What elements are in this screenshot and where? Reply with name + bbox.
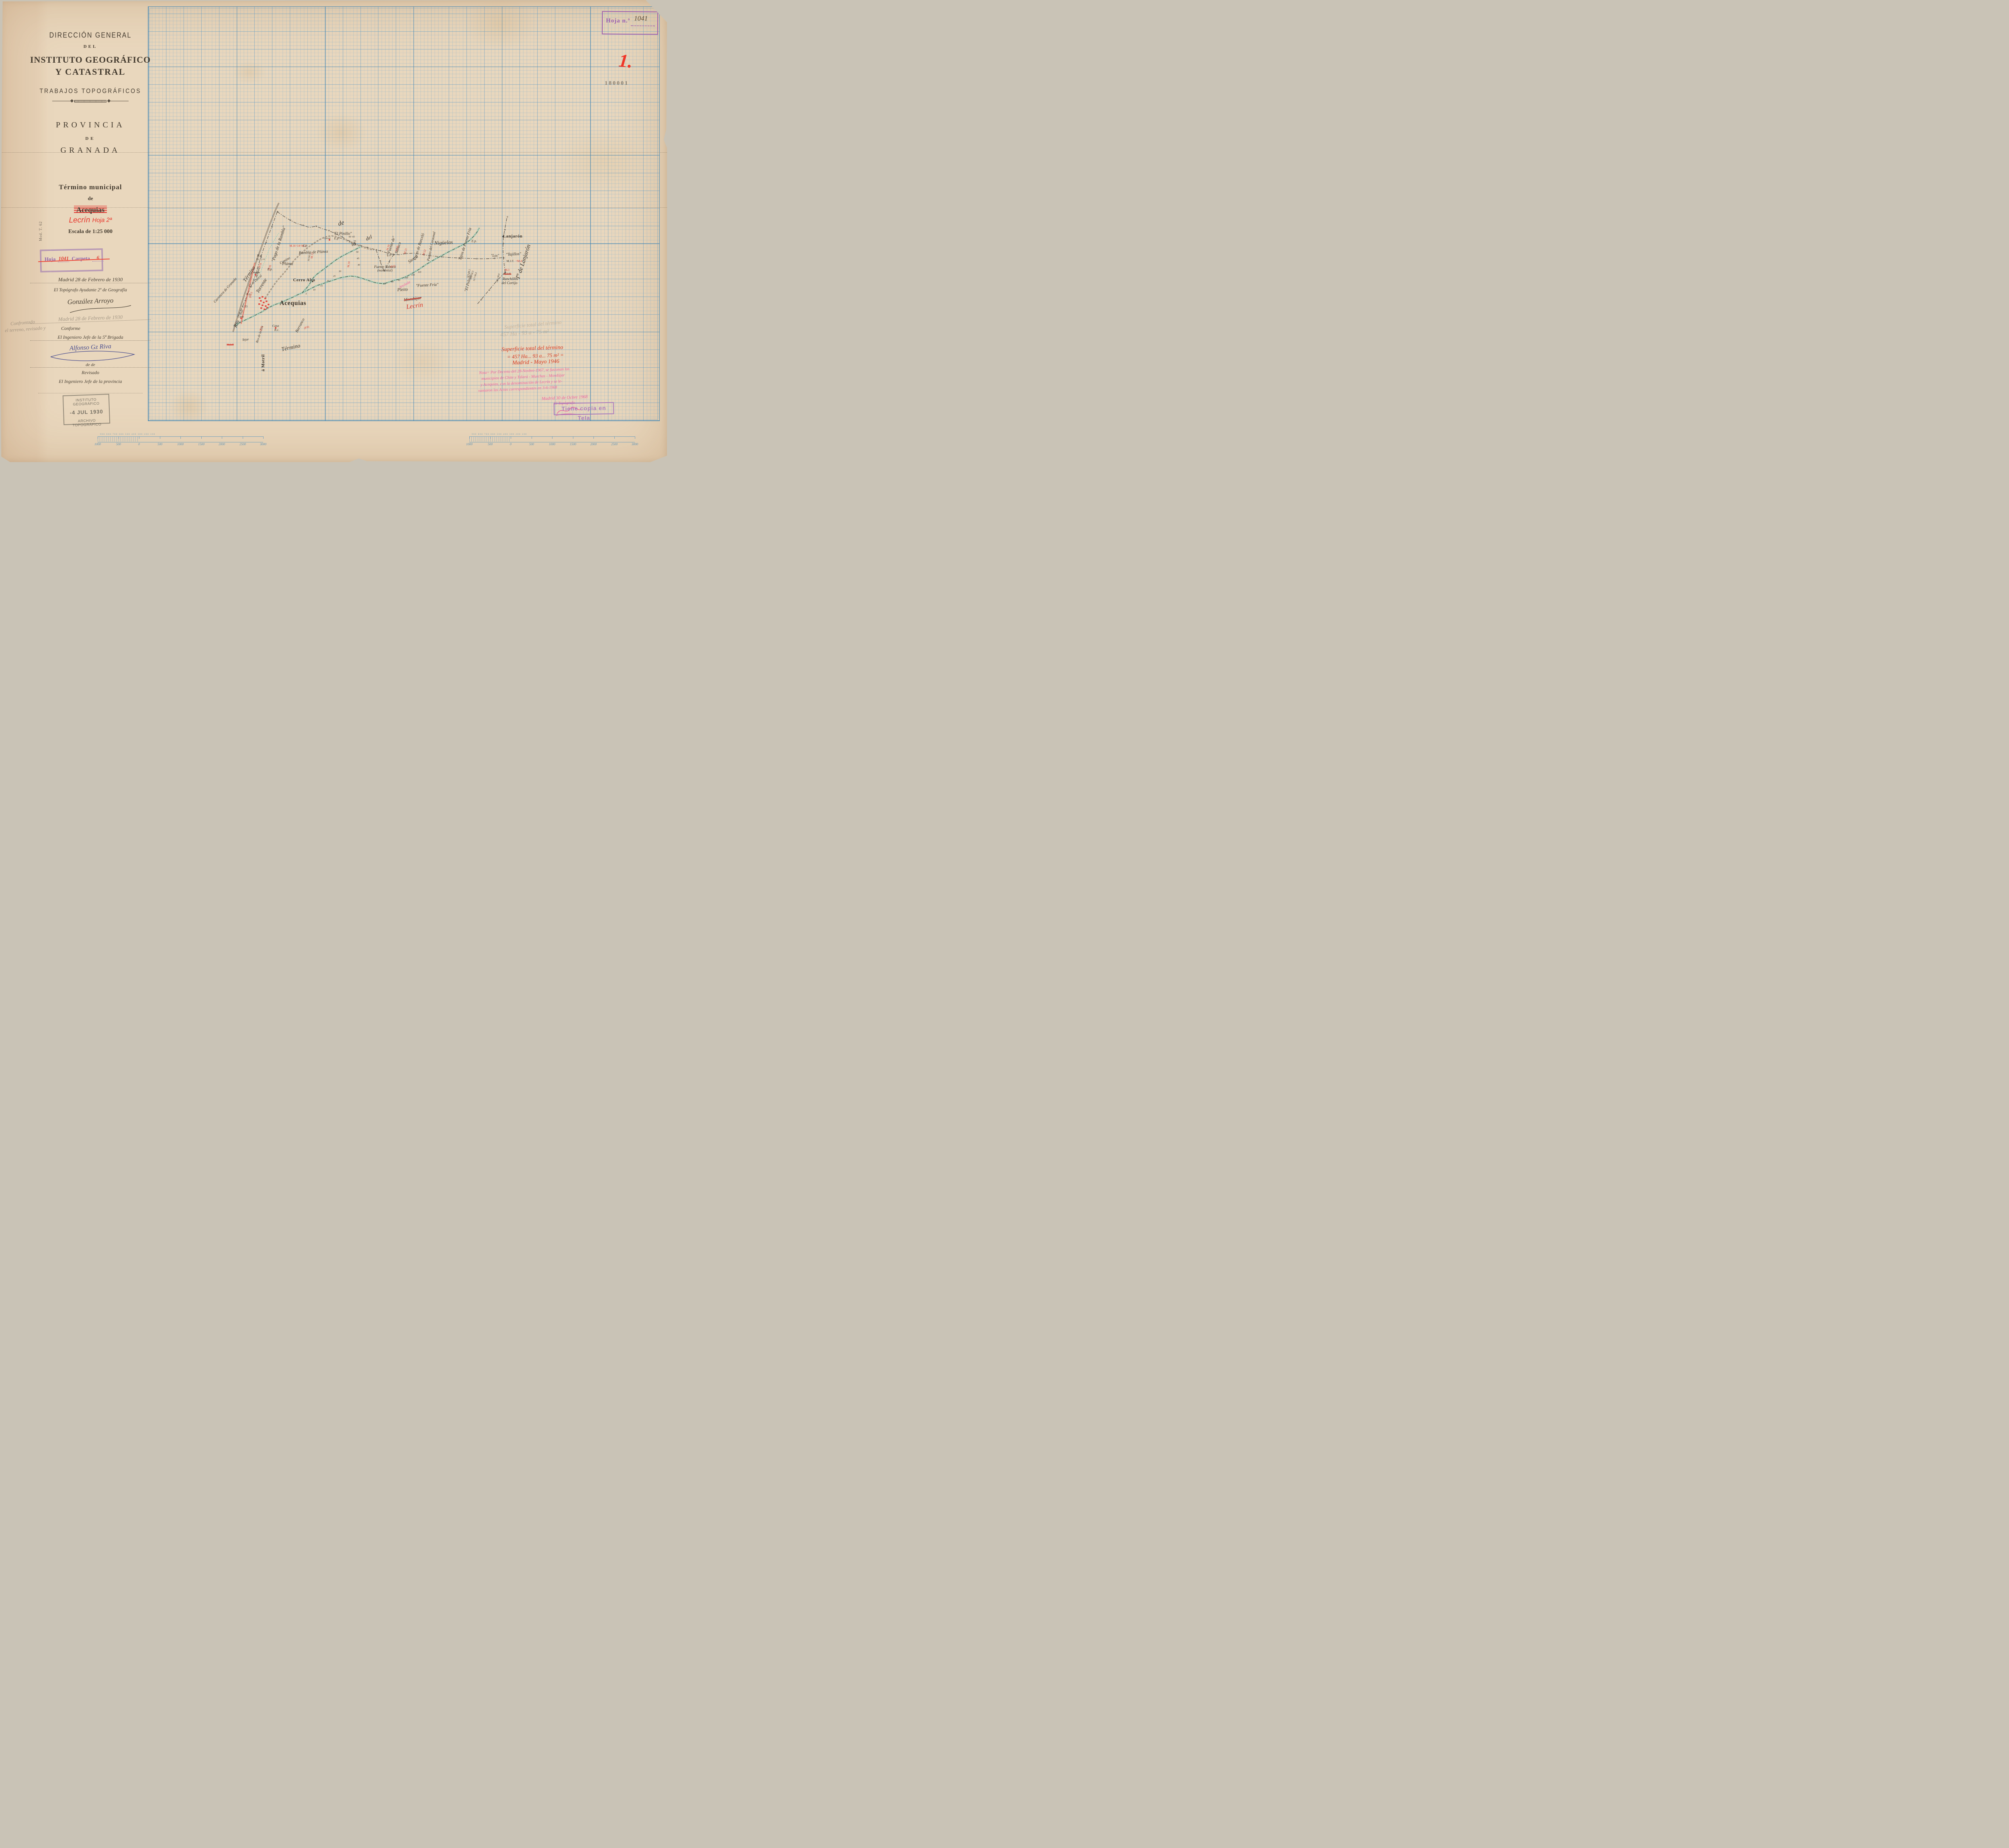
mod-reference: Mod. T. 62 [39, 221, 43, 241]
org-line-2: DEL [24, 44, 157, 49]
provincia-label: PROVINCIA [24, 121, 157, 130]
scale-tick-label: 1500 [198, 442, 205, 446]
scale-tick [139, 436, 139, 439]
scale-tick [552, 436, 552, 439]
scale-tick-label: 2000 [219, 442, 225, 446]
scale-tick-label: 0 [510, 442, 511, 446]
carpeta-stamp-label: Carpeta [72, 255, 90, 262]
scale-sub-numbers: 900 800 700 600 500 400 300 200 100 [100, 433, 155, 436]
provincia-de: DE [24, 136, 157, 141]
conforme-label: Conforme [61, 325, 80, 332]
scale-tick-label: 500 [529, 442, 534, 446]
map-sheet: DIRECCIÓN GENERAL DEL INSTITUTO GEOGRÁFI… [0, 0, 667, 462]
scale-tick [490, 436, 491, 439]
scale-tick [573, 436, 573, 439]
hoja-carpeta-stamp: Hoja 1041 Carpeta 6 [40, 248, 103, 272]
scale-tick-label: 500 [158, 442, 162, 446]
fecha-impresa: Madrid 28 de Febrero de 1930 [30, 276, 151, 283]
org-line-5: TRABAJOS TOPOGRÁFICOS [24, 87, 157, 94]
firma-jefe-brigada: Alfonso Gz Riva [30, 341, 151, 354]
title-block: DIRECCIÓN GENERAL DEL INSTITUTO GEOGRÁFI… [24, 32, 157, 235]
scale-tick-label: 1000 [177, 442, 184, 446]
scale-tick [98, 436, 98, 439]
scale-tick-label: 2500 [611, 442, 618, 446]
scale-sub-numbers: 900 800 700 600 500 400 300 200 100 [472, 433, 527, 436]
scale-tick-label: 500 [116, 442, 121, 446]
scale-tick [469, 436, 470, 439]
carpeta-stamp-number: 6 [92, 254, 104, 262]
org-line-3: INSTITUTO GEOGRÁFICO [24, 55, 157, 65]
scale-tick [635, 436, 635, 439]
jefe-brigada-line: El Ingeniero Jefe de la 5ª Brigada [30, 334, 151, 341]
indice-rojo: 1. [618, 49, 634, 72]
scale-tick [263, 436, 264, 439]
scale-tick [119, 436, 119, 439]
termino-heading: Término municipal [24, 183, 157, 191]
scale-tick [180, 436, 181, 439]
fecha-lapiz: Madrid 28 de Febrero de 1930 [30, 313, 151, 324]
scale-tick-label: 0 [138, 442, 140, 446]
scale-tick [243, 436, 243, 439]
termino-de: de [24, 195, 157, 202]
hoja-referencia: Hoja 2ª [92, 217, 112, 224]
escala-label: Escala de 1:25 000 [24, 229, 157, 235]
hoja-numero-label: Hoja n.º [606, 18, 630, 25]
dotted-rule-bottom [38, 393, 143, 393]
registro-numero: 180001 [605, 80, 629, 87]
firma-topografo-rubrica [68, 305, 133, 314]
scale-tick-label: 2000 [590, 442, 597, 446]
scale-tick [614, 436, 615, 439]
revisado-label: Revisado [30, 370, 151, 376]
provincia-name: GRANADA [24, 146, 157, 155]
archivo-stamp: INSTITUTO GEOGRÁFICO -4 JUL 1930 ARCHIVO… [63, 394, 110, 425]
jefe-provincia-label: El Ingeniero Jefe de la provincia [30, 379, 151, 385]
firma-topografo: González Arroyo [30, 295, 151, 307]
graph-paper-grid [148, 6, 660, 421]
scale-tick-label: 2500 [239, 442, 246, 446]
scale-tick-label: 1500 [570, 442, 576, 446]
scale-tick-label: 3000 [632, 442, 638, 446]
scale-tick [201, 436, 202, 439]
scale-tick-label: 3000 [260, 442, 266, 446]
hoja-numero-valor: 1041 [634, 14, 648, 23]
archivo-stamp-date: -4 JUL 1930 [64, 408, 109, 416]
ornament-divider [52, 99, 129, 103]
scale-tick-label: 500 [488, 442, 493, 446]
scale-tick-label: 1000 [466, 442, 473, 446]
org-line-1: DIRECCIÓN GENERAL [24, 32, 157, 40]
org-line-4: Y CATASTRAL [24, 67, 157, 77]
scale-tick-label: 1000 [94, 442, 101, 446]
municipio-nuevo-nombre: Lecrín [69, 216, 90, 225]
scale-tick [532, 436, 532, 439]
municipio-tachado: Acequias [74, 206, 107, 214]
hoja-numero-dots [631, 25, 655, 26]
hoja-numero-box: Hoja n.º 1041 [602, 11, 658, 35]
archivo-stamp-l3: ARCHIVO TOPOGRÁFICO [64, 418, 110, 428]
scale-tick [222, 436, 222, 439]
scale-tick [593, 436, 594, 439]
scale-tick [511, 436, 511, 439]
tela-stamp: Tiene copia en Tela [554, 402, 614, 415]
municipio-nuevo: Lecrín Hoja 2ª [24, 215, 157, 226]
cargo-topografo: El Topógrafo Ayudante 2º de Geografía [30, 288, 151, 293]
de-de-line: de de [30, 362, 151, 368]
scale-tick-label: 1000 [549, 442, 555, 446]
archivo-stamp-l1: INSTITUTO GEOGRÁFICO [63, 397, 109, 407]
scale-tick [160, 436, 160, 439]
